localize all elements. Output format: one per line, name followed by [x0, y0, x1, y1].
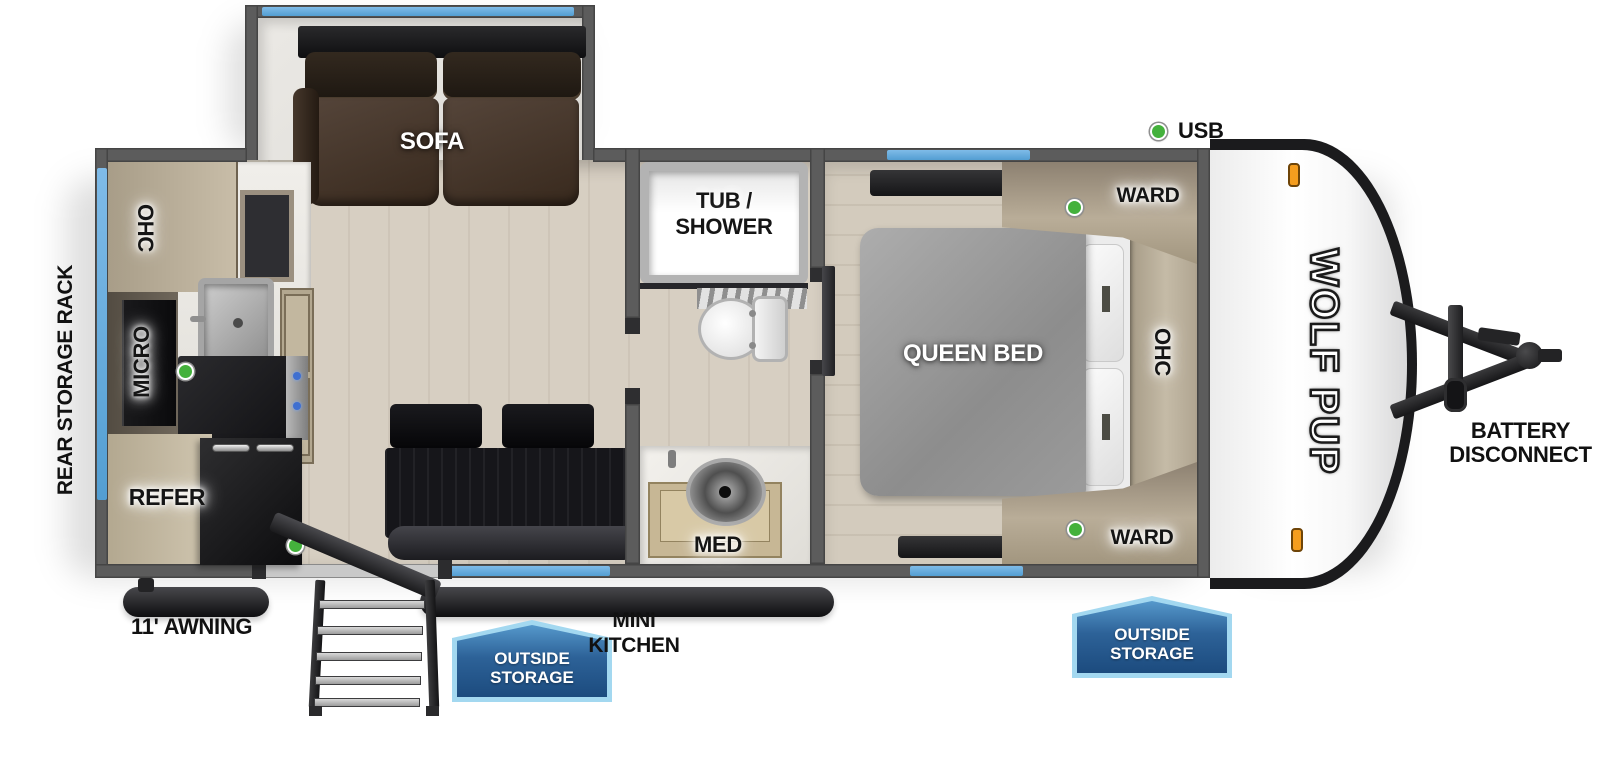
med-faucet — [668, 450, 676, 468]
slideout-left-wall — [245, 5, 258, 163]
bedroom-door-leaf — [822, 266, 835, 376]
toilet-tank — [752, 296, 788, 362]
bedroom-ohc-label: OHC — [1151, 307, 1175, 397]
tub-line1: TUB / — [696, 188, 752, 213]
outside-door-line1: OUTSIDE — [494, 649, 570, 668]
bath-left-jamb-lower — [625, 388, 640, 404]
mini-kitchen-line1: MINI — [612, 609, 655, 632]
kitchen-ohc-cabinet — [108, 162, 238, 292]
step-tread-1 — [319, 600, 425, 609]
outside-storage-front-label: OUTSIDE STORAGE — [1077, 625, 1227, 663]
usb-legend-label: USB — [1178, 118, 1224, 144]
sofa-back-cushion-right — [443, 52, 581, 100]
tub-line2: SHOWER — [675, 214, 772, 239]
sofa-back-cushion-left — [305, 52, 437, 100]
bench-headrest-right — [502, 404, 594, 448]
med-label: MED — [678, 532, 758, 558]
tongue-jack-post — [1448, 305, 1463, 383]
usb-legend-dot — [1150, 123, 1167, 140]
toilet-hinge-1 — [749, 310, 756, 317]
bench-front-bar — [388, 526, 640, 560]
bath-right-wall-upper — [810, 148, 825, 268]
bench-headrest-left — [390, 404, 482, 448]
outside-front-line1: OUTSIDE — [1114, 625, 1190, 644]
kitchen-ohc-label: OHC — [134, 183, 158, 273]
sink-drain — [233, 318, 243, 328]
steps-foot-right — [426, 706, 439, 716]
step-tread-3 — [316, 652, 422, 661]
kitchen-refer-label: REFER — [112, 484, 222, 511]
awning-label: 11' AWNING — [131, 614, 252, 640]
door-jamb-right — [438, 560, 452, 579]
tub-shower-label: TUB / SHOWER — [648, 188, 800, 240]
step-tread-5 — [314, 698, 420, 707]
entry-steps — [305, 578, 445, 716]
med-sink-drain — [719, 486, 731, 498]
usb-dot-kitchen — [177, 363, 194, 380]
top-wall-left — [95, 148, 247, 162]
bath-left-wall-upper — [625, 148, 640, 318]
bedroom-bottom-shelf — [898, 536, 1020, 558]
toilet-hinge-2 — [749, 342, 756, 349]
mini-kitchen-label: MINI KITCHEN — [568, 608, 700, 658]
bedroom-top-window — [887, 150, 1030, 160]
rear-rack-strip — [97, 168, 107, 500]
range-knob-2 — [293, 402, 301, 410]
kitchen-micro-label: MICRO — [129, 307, 153, 417]
step-tread-2 — [317, 626, 423, 635]
wolf-pup-logo: WOLF PUP — [1298, 202, 1346, 522]
sofa-label: SOFA — [382, 128, 482, 156]
sink-faucet — [190, 316, 206, 322]
usb-dot-wardrobe-bottom — [1067, 521, 1084, 538]
range-silver-edge — [286, 356, 308, 440]
pillow-latch-bottom — [1102, 414, 1110, 440]
pillow-latch-top — [1102, 286, 1110, 312]
tongue-jack-wheel — [1444, 378, 1467, 412]
battery-line2: DISCONNECT — [1449, 442, 1591, 467]
step-tread-4 — [315, 676, 421, 685]
steps-foot-left — [309, 706, 322, 716]
outside-storage-badge-front-inner: OUTSIDE STORAGE — [1077, 601, 1227, 673]
awning-mount — [138, 578, 154, 592]
outside-front-line2: STORAGE — [1110, 644, 1194, 663]
floorplan-canvas: WOLF PUP BATTERY DISCONNECT SOFA — [0, 0, 1600, 765]
battery-disconnect-label: BATTERY DISCONNECT — [1438, 419, 1600, 467]
bedroom-bottom-window — [910, 566, 1023, 576]
mini-kitchen-line2: KITCHEN — [588, 634, 679, 657]
steps-rail-right — [425, 580, 439, 708]
outside-storage-badge-front: OUTSIDE STORAGE — [1072, 596, 1232, 678]
marker-light-bottom — [1291, 528, 1303, 552]
slideout-window — [262, 7, 574, 16]
bench-seat — [385, 448, 631, 538]
outside-door-line2: STORAGE — [490, 668, 574, 687]
queen-bed-label: QUEEN BED — [883, 340, 1063, 368]
rear-storage-rack-label: REAR STORAGE RACK — [54, 250, 80, 510]
wardrobe-bottom-label: WARD — [1100, 526, 1184, 550]
marker-light-top — [1288, 163, 1300, 187]
fridge-handle-1 — [212, 444, 250, 452]
bath-left-jamb-upper — [625, 318, 640, 334]
fridge-handle-2 — [256, 444, 294, 452]
usb-dot-wardrobe-top — [1066, 199, 1083, 216]
range-knob-1 — [293, 372, 301, 380]
sofa — [293, 26, 589, 218]
battery-line1: BATTERY — [1471, 418, 1570, 443]
bath-right-wall-lower — [810, 374, 825, 564]
front-wall — [1197, 148, 1210, 578]
kitchen-glass-cabinet — [240, 190, 294, 282]
bath-left-wall-lower — [625, 404, 640, 564]
wardrobe-top-label: WARD — [1106, 184, 1190, 208]
hitch-ball-arm — [1538, 349, 1562, 362]
